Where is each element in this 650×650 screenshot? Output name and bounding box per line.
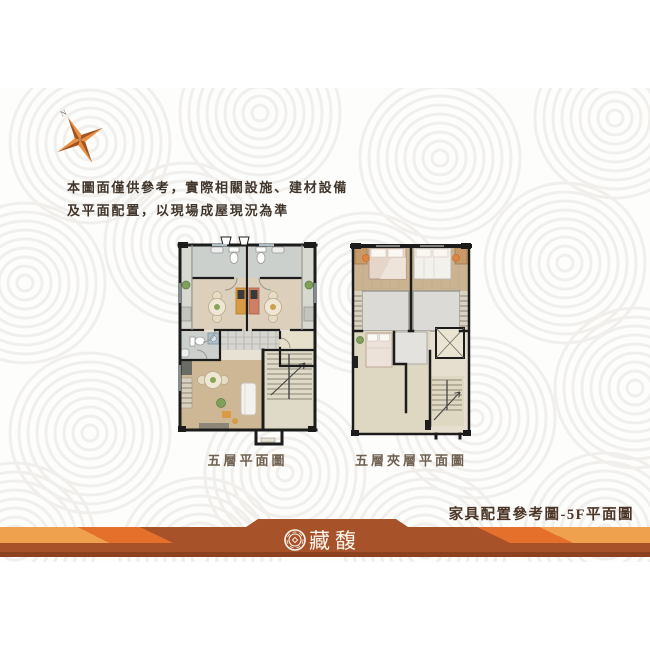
compass-north-icon: N bbox=[50, 102, 110, 170]
brand-footer-bar: 藏馥 bbox=[0, 516, 650, 562]
compass-north-label: N bbox=[59, 108, 69, 119]
disclaimer-line-2: 及平面配置，以現場成屋現況為準 bbox=[67, 199, 387, 222]
kitchenette-icon bbox=[180, 360, 192, 375]
plant-icon bbox=[357, 337, 364, 344]
plan-caption-5f-mezzanine: 五層夾層平面圖 bbox=[348, 450, 474, 469]
gray-room bbox=[394, 332, 427, 364]
elevator-shaft-icon bbox=[436, 328, 464, 358]
disclaimer-text: 本圖面僅供參考，實際相關設施、建材設備 及平面配置，以現場成屋現況為準 bbox=[67, 176, 387, 222]
entry-door bbox=[256, 430, 282, 444]
floor-plan-5f-mezzanine bbox=[348, 236, 474, 440]
washer-icon bbox=[208, 333, 219, 344]
stairs-down-icon bbox=[430, 376, 464, 426]
floor-plan-5f bbox=[175, 233, 320, 448]
bed-lower-icon bbox=[366, 333, 392, 367]
stool-icon bbox=[232, 418, 238, 424]
corridor bbox=[220, 330, 280, 350]
plan-caption-5f: 五層平面圖 bbox=[175, 450, 320, 469]
service-stairs-icon bbox=[180, 378, 192, 408]
disclaimer-line-1: 本圖面僅供參考，實際相關設施、建材設備 bbox=[67, 176, 387, 199]
compass-star bbox=[50, 105, 110, 170]
sofa-icon bbox=[241, 383, 256, 415]
coffee-table-icon bbox=[222, 411, 231, 418]
tv-cabinet-icon bbox=[199, 423, 229, 429]
brand-logo-text: 藏馥 bbox=[309, 529, 361, 553]
